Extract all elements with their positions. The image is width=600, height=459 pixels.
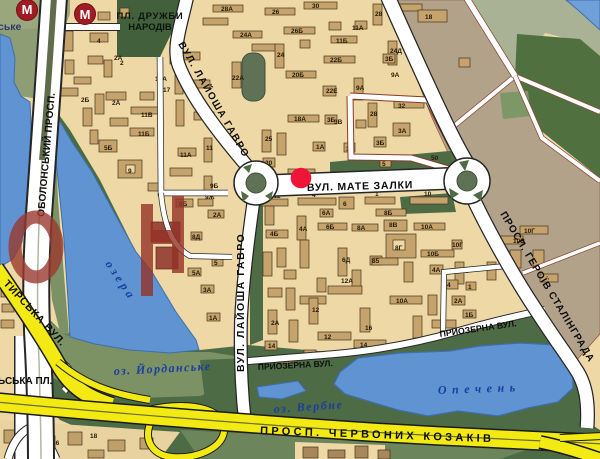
- svg-text:10Б: 10Б: [427, 251, 439, 258]
- svg-text:ВУЛ. ЛАЙОША ГАВРО: ВУЛ. ЛАЙОША ГАВРО: [234, 233, 247, 372]
- svg-text:12: 12: [324, 334, 332, 341]
- svg-text:2Б: 2Б: [81, 97, 90, 104]
- svg-text:22Е: 22Е: [326, 88, 338, 95]
- svg-text:3Б: 3Б: [376, 140, 385, 147]
- svg-text:М: М: [80, 7, 91, 22]
- svg-text:24А: 24А: [240, 32, 252, 39]
- svg-text:4: 4: [97, 38, 101, 45]
- svg-text:3А: 3А: [398, 128, 407, 135]
- svg-text:11Б: 11Б: [138, 131, 150, 138]
- svg-text:26Б: 26Б: [291, 28, 303, 35]
- svg-text:8А: 8А: [357, 225, 366, 232]
- svg-text:6Д: 6Д: [342, 257, 351, 264]
- svg-text:4А: 4А: [299, 226, 308, 233]
- svg-text:ське: ське: [0, 21, 22, 33]
- svg-text:6: 6: [343, 201, 347, 208]
- svg-text:М: М: [22, 2, 33, 17]
- svg-text:1А: 1А: [209, 315, 218, 322]
- svg-text:32: 32: [398, 103, 406, 110]
- svg-text:28А: 28А: [221, 6, 233, 13]
- svg-text:6Б: 6Б: [326, 224, 335, 231]
- svg-text:10А: 10А: [421, 224, 433, 231]
- svg-text:9: 9: [128, 168, 132, 175]
- svg-text:9Б: 9Б: [210, 183, 219, 190]
- svg-text:5А: 5А: [192, 270, 201, 277]
- svg-text:24Д: 24Д: [390, 48, 402, 55]
- svg-text:3В: 3В: [334, 119, 343, 126]
- svg-text:11: 11: [206, 145, 213, 152]
- svg-text:4: 4: [447, 282, 451, 289]
- svg-text:НАРОДІВ: НАРОДІВ: [128, 22, 172, 33]
- svg-text:30: 30: [312, 3, 320, 10]
- svg-text:9А: 9А: [391, 72, 400, 79]
- svg-text:24: 24: [277, 52, 285, 59]
- svg-text:12: 12: [312, 307, 320, 314]
- svg-text:14: 14: [268, 343, 276, 350]
- svg-text:10А: 10А: [396, 298, 408, 305]
- svg-text:4Б: 4Б: [270, 231, 279, 238]
- svg-text:5Б: 5Б: [104, 145, 113, 152]
- svg-text:11А: 11А: [180, 152, 192, 159]
- svg-text:22Б: 22Б: [330, 57, 342, 64]
- svg-text:16: 16: [365, 325, 373, 332]
- svg-text:9А: 9А: [356, 85, 365, 92]
- svg-text:2А: 2А: [112, 100, 121, 107]
- svg-text:10Г: 10Г: [452, 242, 463, 249]
- svg-text:85: 85: [372, 258, 380, 265]
- svg-text:2: 2: [120, 60, 124, 67]
- svg-text:6А: 6А: [322, 210, 331, 217]
- svg-text:ЬСЬКА ПЛ.: ЬСЬКА ПЛ.: [0, 376, 53, 387]
- svg-text:20Б: 20Б: [292, 72, 304, 79]
- svg-text:8В: 8В: [389, 222, 398, 229]
- svg-text:22А: 22А: [232, 75, 244, 82]
- svg-text:8Б: 8Б: [384, 210, 393, 217]
- svg-text:Опечень: Опечень: [438, 380, 521, 397]
- svg-text:8Д: 8Д: [192, 234, 201, 241]
- svg-text:12А: 12А: [341, 278, 353, 285]
- svg-text:8Г: 8Г: [395, 245, 403, 252]
- svg-text:10Г: 10Г: [524, 228, 535, 235]
- svg-text:25: 25: [265, 136, 273, 143]
- svg-text:3Б: 3Б: [385, 56, 394, 63]
- svg-text:5: 5: [214, 260, 218, 267]
- svg-text:17: 17: [163, 87, 171, 94]
- svg-text:18: 18: [425, 14, 433, 21]
- svg-text:11В: 11В: [141, 112, 153, 119]
- svg-text:28: 28: [375, 11, 383, 18]
- svg-text:11Б: 11Б: [336, 38, 348, 45]
- svg-text:2А: 2А: [271, 320, 280, 327]
- svg-text:28: 28: [370, 111, 378, 118]
- svg-text:2А: 2А: [213, 212, 222, 219]
- svg-text:1: 1: [468, 284, 472, 291]
- svg-text:3А: 3А: [203, 287, 212, 294]
- svg-text:2А: 2А: [454, 298, 463, 305]
- svg-text:1Б: 1Б: [465, 312, 474, 319]
- svg-text:ПЛ. ДРУЖБИ: ПЛ. ДРУЖБИ: [117, 11, 184, 22]
- svg-text:10: 10: [424, 191, 432, 198]
- svg-text:11А: 11А: [352, 25, 364, 32]
- svg-text:5: 5: [382, 161, 386, 168]
- svg-text:18А: 18А: [294, 116, 306, 123]
- svg-text:4А: 4А: [432, 267, 441, 274]
- svg-text:26: 26: [272, 9, 280, 16]
- svg-text:18: 18: [90, 433, 98, 440]
- svg-text:1А: 1А: [316, 144, 325, 151]
